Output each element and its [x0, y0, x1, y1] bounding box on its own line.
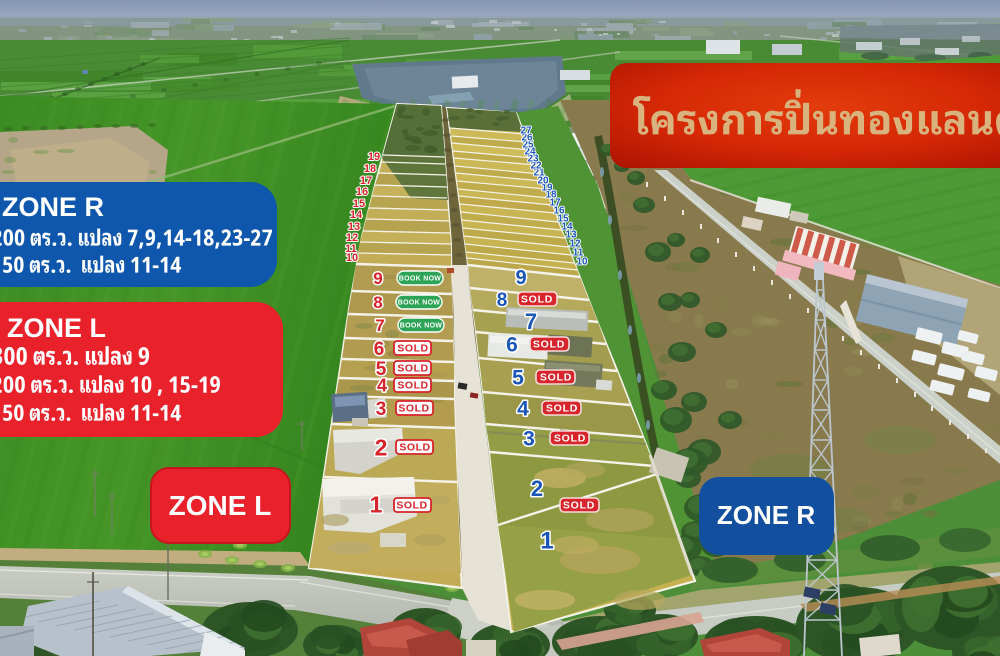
svg-text:SOLD: SOLD: [397, 380, 428, 392]
svg-text:14: 14: [350, 209, 363, 221]
svg-text:2: 2: [531, 476, 543, 501]
svg-text:BOOK NOW: BOOK NOW: [398, 300, 441, 307]
svg-text:13: 13: [348, 221, 360, 233]
svg-text:2: 2: [375, 434, 388, 460]
svg-text:17: 17: [360, 175, 372, 187]
svg-text:SOLD: SOLD: [563, 500, 595, 512]
svg-text:9: 9: [373, 269, 382, 288]
svg-text:18: 18: [364, 163, 376, 175]
svg-text:SOLD: SOLD: [533, 339, 565, 351]
svg-text:SOLD: SOLD: [397, 343, 428, 355]
svg-text:8: 8: [373, 293, 382, 312]
svg-text:4: 4: [517, 398, 529, 421]
svg-text:1: 1: [540, 528, 553, 555]
svg-text:11: 11: [345, 243, 357, 255]
svg-text:SOLD: SOLD: [396, 500, 427, 512]
svg-text:SOLD: SOLD: [397, 363, 428, 375]
svg-text:SOLD: SOLD: [554, 433, 586, 445]
svg-text:8: 8: [497, 290, 508, 311]
svg-text:7: 7: [525, 309, 537, 334]
svg-text:SOLD: SOLD: [398, 403, 429, 415]
svg-text:12: 12: [346, 232, 358, 244]
svg-text:4: 4: [377, 375, 387, 395]
svg-text:6: 6: [374, 339, 385, 360]
svg-text:BOOK NOW: BOOK NOW: [399, 276, 442, 283]
svg-text:15: 15: [353, 198, 365, 210]
svg-text:SOLD: SOLD: [546, 403, 578, 415]
svg-text:27: 27: [520, 126, 532, 137]
svg-text:ZONE R: ZONE R: [2, 192, 104, 222]
svg-text:19: 19: [368, 151, 380, 163]
svg-text:SOLD: SOLD: [521, 294, 553, 306]
svg-text:SOLD: SOLD: [399, 442, 430, 454]
svg-text:3: 3: [523, 428, 535, 451]
svg-text:16: 16: [356, 186, 368, 198]
svg-text:7: 7: [375, 316, 384, 335]
svg-text:9: 9: [515, 267, 526, 289]
svg-text:BOOK NOW: BOOK NOW: [400, 323, 443, 330]
svg-text:1: 1: [370, 491, 383, 517]
svg-text:SOLD: SOLD: [540, 372, 572, 384]
svg-text:ZONE R: ZONE R: [717, 500, 815, 530]
svg-text:ZONE L: ZONE L: [7, 313, 106, 343]
svg-text:3: 3: [376, 399, 387, 420]
svg-text:5: 5: [512, 367, 524, 390]
svg-text:6: 6: [506, 334, 518, 357]
svg-text:ZONE L: ZONE L: [169, 490, 272, 521]
